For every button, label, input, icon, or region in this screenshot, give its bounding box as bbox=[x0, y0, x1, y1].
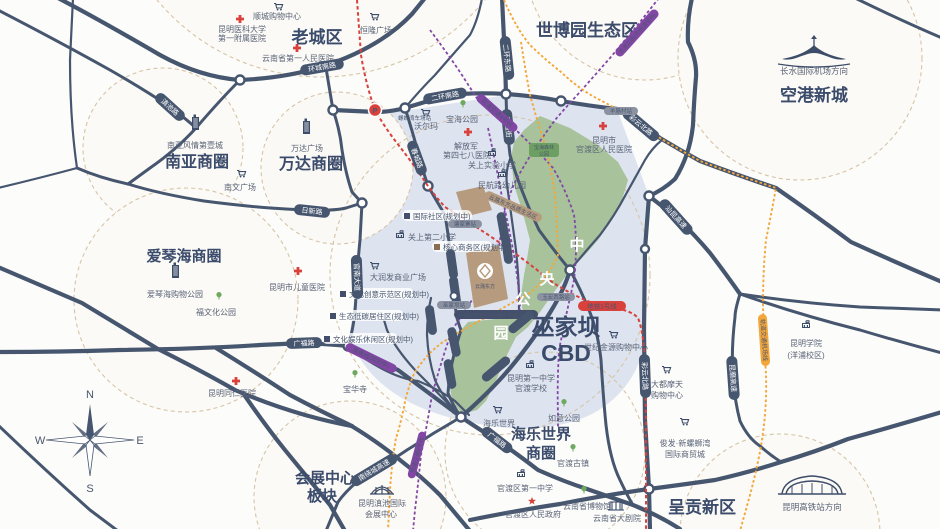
svg-text:昆明滇池国际: 昆明滇池国际 bbox=[358, 498, 406, 508]
svg-text:中: 中 bbox=[569, 236, 584, 254]
svg-text:宝海公园: 宝海公园 bbox=[446, 114, 478, 124]
svg-text:昆明市儿童医院: 昆明市儿童医院 bbox=[269, 282, 325, 292]
svg-text:昆明市: 昆明市 bbox=[592, 135, 616, 145]
svg-text:关上实验小学: 关上实验小学 bbox=[468, 160, 516, 170]
svg-text:南亚风情第壹城: 南亚风情第壹城 bbox=[167, 140, 223, 150]
svg-text:呈贡新区: 呈贡新区 bbox=[668, 497, 736, 517]
svg-text:(洋浦校区): (洋浦校区) bbox=[787, 350, 825, 360]
svg-text:昆明医科大学: 昆明医科大学 bbox=[218, 24, 266, 34]
svg-text:S: S bbox=[86, 483, 93, 495]
svg-text:恒隆广场: 恒隆广场 bbox=[360, 25, 392, 35]
svg-text:大润发商业广场: 大润发商业广场 bbox=[370, 272, 426, 282]
svg-text:爱琴海商圈: 爱琴海商圈 bbox=[146, 247, 221, 265]
svg-text:老城区: 老城区 bbox=[291, 27, 343, 47]
svg-text:宝海森林: 宝海森林 bbox=[534, 144, 554, 151]
svg-text:世纪金源购物中心: 世纪金源购物中心 bbox=[584, 342, 648, 352]
svg-text:塘家寨站: 塘家寨站 bbox=[454, 220, 477, 228]
svg-text:云南省博物馆: 云南省博物馆 bbox=[563, 501, 611, 511]
svg-text:宝华寺: 宝华寺 bbox=[343, 384, 367, 394]
svg-text:E: E bbox=[136, 435, 143, 447]
svg-text:海乐世界: 海乐世界 bbox=[511, 425, 571, 443]
svg-text:昆明第一中学: 昆明第一中学 bbox=[507, 373, 555, 383]
svg-text:官渡古镇: 官渡古镇 bbox=[557, 458, 589, 468]
svg-text:螺蛳湾车场站: 螺蛳湾车场站 bbox=[398, 114, 432, 122]
svg-text:地铁1号线: 地铁1号线 bbox=[587, 302, 617, 311]
svg-text:文化娱乐休闲区(规划中): 文化娱乐休闲区(规划中) bbox=[333, 334, 413, 344]
svg-text:空港新城: 空港新城 bbox=[780, 85, 848, 105]
svg-text:官渡区人民政府: 官渡区人民政府 bbox=[505, 509, 561, 519]
svg-text:会展中心: 会展中心 bbox=[295, 469, 355, 487]
svg-text:W: W bbox=[35, 435, 46, 447]
svg-text:园: 园 bbox=[493, 325, 508, 342]
svg-text:南亚商圈: 南亚商圈 bbox=[165, 152, 229, 171]
svg-text:昆明高铁站方向: 昆明高铁站方向 bbox=[782, 502, 842, 512]
svg-text:关上第二小学: 关上第二小学 bbox=[408, 232, 456, 242]
svg-text:板块: 板块 bbox=[307, 487, 338, 505]
svg-text:海乐世界: 海乐世界 bbox=[483, 418, 515, 428]
svg-text:昆明学院: 昆明学院 bbox=[790, 338, 822, 348]
svg-text:购物中心: 购物中心 bbox=[651, 390, 683, 400]
svg-text:央: 央 bbox=[539, 270, 555, 288]
svg-text:爱琴海购物公园: 爱琴海购物公园 bbox=[147, 289, 203, 299]
svg-text:福文化公园: 福文化公园 bbox=[196, 307, 236, 317]
svg-text:生态低碳居住区(规划中): 生态低碳居住区(规划中) bbox=[339, 311, 419, 321]
svg-text:云南省大剧院: 云南省大剧院 bbox=[593, 513, 641, 523]
svg-text:如意公园: 如意公园 bbox=[548, 413, 580, 423]
svg-text:俊发·新螺蛳湾: 俊发·新螺蛳湾 bbox=[660, 438, 711, 448]
svg-text:会展中心: 会展中心 bbox=[365, 509, 397, 519]
svg-text:官渡区人民医院: 官渡区人民医院 bbox=[576, 144, 632, 154]
svg-text:南文广场: 南文广场 bbox=[224, 182, 256, 192]
svg-text:商圈: 商圈 bbox=[526, 444, 556, 462]
svg-text:官渡学校: 官渡学校 bbox=[515, 383, 547, 393]
svg-text:世博园生态区: 世博园生态区 bbox=[536, 20, 638, 40]
svg-text:巫家坝站: 巫家坝站 bbox=[443, 301, 466, 309]
svg-text:民航路幼儿园: 民航路幼儿园 bbox=[478, 180, 526, 190]
svg-text:公: 公 bbox=[515, 291, 530, 308]
svg-text:官渡区第一中学: 官渡区第一中学 bbox=[497, 483, 553, 493]
svg-text:公园: 公园 bbox=[539, 152, 549, 158]
svg-text:顺城购物中心: 顺城购物中心 bbox=[253, 11, 301, 21]
svg-text:云潞东方: 云潞东方 bbox=[475, 283, 495, 290]
svg-text:国际社区(规划中): 国际社区(规划中) bbox=[413, 211, 471, 221]
svg-text:第四七八医院: 第四七八医院 bbox=[443, 150, 491, 160]
svg-text:大都摩天: 大都摩天 bbox=[651, 379, 683, 389]
svg-text:万达商圈: 万达商圈 bbox=[278, 154, 343, 173]
svg-text:昆明同仁医院: 昆明同仁医院 bbox=[208, 388, 256, 398]
svg-text:万达广场: 万达广场 bbox=[291, 143, 323, 153]
svg-text:巫家坝: 巫家坝 bbox=[532, 314, 601, 340]
svg-text:羊肠村站: 羊肠村站 bbox=[610, 107, 633, 115]
svg-text:国际商贸城: 国际商贸城 bbox=[665, 449, 705, 459]
svg-text:P: P bbox=[373, 108, 378, 115]
svg-text:沃尔玛: 沃尔玛 bbox=[414, 121, 438, 131]
svg-text:玉宏西路站: 玉宏西路站 bbox=[542, 293, 570, 301]
svg-text:N: N bbox=[86, 389, 94, 401]
svg-text:解放军: 解放军 bbox=[454, 141, 478, 151]
svg-text:第一附属医院: 第一附属医院 bbox=[218, 33, 266, 43]
